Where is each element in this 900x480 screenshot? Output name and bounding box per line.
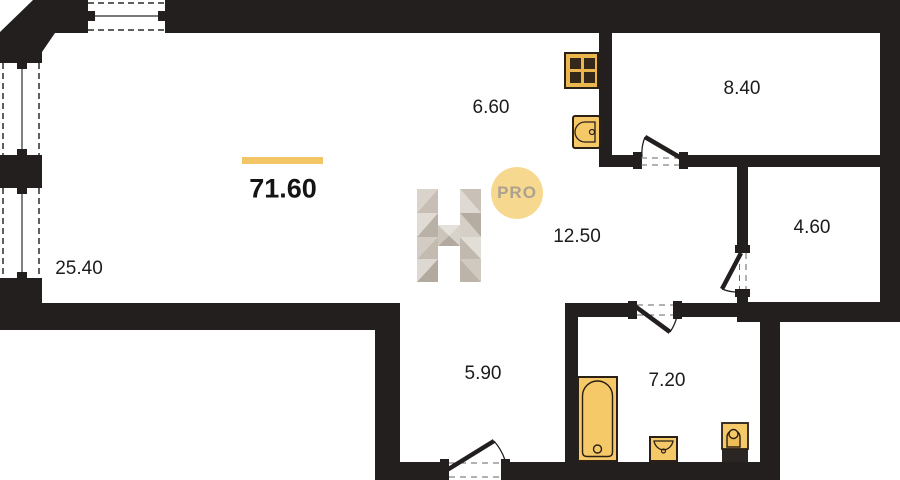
entrance-door-jamb — [501, 459, 510, 480]
room-area-label-living: 25.40 — [55, 258, 103, 280]
total-area-underline — [242, 157, 323, 164]
bedroom-door — [641, 137, 681, 165]
bedroom-door-jamb — [633, 152, 642, 169]
bathtub-icon — [578, 377, 617, 461]
storage-door-jamb — [735, 245, 750, 253]
washbasin-icon — [650, 437, 677, 461]
bedroom-door-jamb — [679, 152, 688, 169]
toilet-icon — [722, 423, 748, 462]
pro-badge-label: PRO — [497, 183, 537, 203]
h-logo-watermark — [417, 189, 481, 282]
storage-door — [722, 253, 746, 292]
room-area-label-bedroom: 8.40 — [724, 78, 761, 100]
bathroom-door-jamb — [628, 301, 637, 319]
bathroom-door — [636, 305, 677, 332]
window-top — [88, 3, 165, 30]
kitchen-sink-icon — [573, 116, 600, 148]
room-area-label-bathroom: 7.20 — [649, 370, 686, 392]
pro-badge: PRO — [491, 167, 543, 219]
total-area-value: 71.60 — [249, 174, 317, 205]
room-area-label-corridor: 5.90 — [465, 363, 502, 385]
room-area-label-storage: 4.60 — [794, 217, 831, 239]
floor-plan-drawing — [0, 0, 900, 480]
room-area-label-kitchen: 6.60 — [473, 97, 510, 119]
entrance-door — [447, 441, 505, 477]
floor-plan: 71.60 PRO 25.40 6.60 8.40 12.50 4.60 5.9… — [0, 0, 900, 480]
storage-door-jamb — [735, 289, 750, 297]
window-left-lower — [3, 188, 39, 278]
window-left-upper — [3, 63, 39, 155]
room-area-label-hallway: 12.50 — [553, 226, 601, 248]
stove-icon — [565, 53, 598, 88]
